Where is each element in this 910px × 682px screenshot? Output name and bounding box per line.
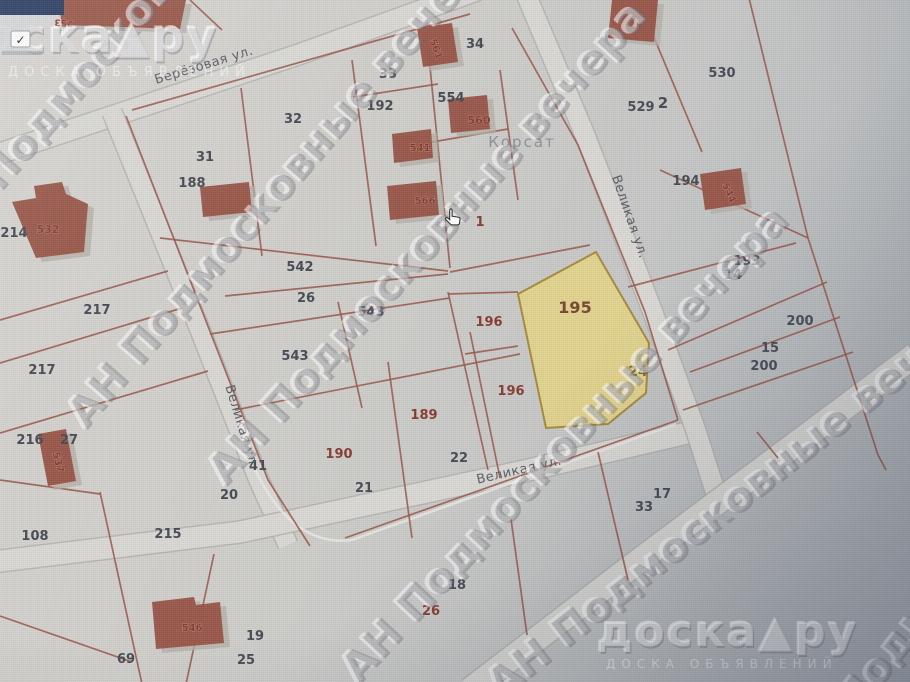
parcel-number-label: 33 bbox=[635, 500, 653, 515]
parcel-boundary-line bbox=[0, 616, 132, 662]
building-number-label: 560 bbox=[468, 114, 491, 127]
parcel-number-label: 69 bbox=[117, 652, 135, 667]
parcel-number-label: 200 bbox=[786, 314, 813, 329]
photo-of-screen: 1952425356153256054156653754654421421721… bbox=[0, 0, 910, 682]
cadastral-map-canvas[interactable]: 1952425356153256054156653754654421421721… bbox=[0, 0, 910, 682]
parcel-number-label: 27 bbox=[60, 433, 78, 448]
address-number-label: 189 bbox=[410, 408, 437, 423]
parcel-number-label: 34 bbox=[466, 37, 484, 52]
parcel-number-label: 31 bbox=[196, 150, 214, 165]
parcel-number-label: 17 bbox=[653, 487, 671, 502]
parcel-number-label: 542 bbox=[286, 260, 313, 275]
site-tagline: ДОСКА ОБЪЯВЛЕНИЙ bbox=[8, 64, 251, 80]
building: 532 bbox=[12, 182, 94, 262]
building-number-label: 546 bbox=[182, 623, 203, 634]
parcel-number-label: 200 bbox=[750, 359, 777, 374]
parcel-number-label: 26 bbox=[297, 291, 315, 306]
address-number-label: 196 bbox=[475, 315, 502, 330]
svg-text:доска▲ру: доска▲ру bbox=[597, 606, 858, 657]
parcel-number-label: 529 bbox=[627, 100, 654, 115]
building-number-label: 532 bbox=[37, 223, 60, 236]
parcel-number-label: 216 bbox=[16, 433, 43, 448]
parcel-number-label: 530 bbox=[708, 66, 735, 81]
site-tagline: ДОСКА ОБЪЯВЛЕНИЙ bbox=[606, 656, 838, 671]
parcel-number-label: 217 bbox=[28, 363, 55, 378]
parcel-number-label: 214 bbox=[0, 226, 27, 241]
checkmark-icon: ✓ bbox=[15, 33, 25, 47]
building-number-label: 541 bbox=[410, 143, 431, 154]
parcel-number-label: 15 bbox=[761, 341, 779, 356]
parcel-number-label: 2 bbox=[658, 94, 668, 112]
parcel-number-label: 194 bbox=[672, 174, 699, 189]
small-text-bar bbox=[2, 51, 42, 55]
parcel-number-label: 21 bbox=[355, 481, 373, 496]
building: 546 bbox=[152, 597, 230, 653]
parcel-number-label: 25 bbox=[237, 653, 255, 668]
parcel-number-label: 217 bbox=[83, 303, 110, 318]
parcel-boundary-line bbox=[511, 519, 527, 635]
address-number-label: 190 bbox=[325, 447, 352, 462]
address-number-label: 196 bbox=[497, 384, 524, 399]
parcel-number-label: 554 bbox=[437, 91, 464, 106]
selected-parcel-number: 195 bbox=[558, 298, 591, 317]
parcel-number-label: 188 bbox=[178, 176, 205, 191]
parcel-number-label: 19 bbox=[246, 629, 264, 644]
parcel-number-label: 215 bbox=[154, 527, 181, 542]
building: 541 bbox=[392, 129, 439, 167]
building: 544 bbox=[700, 168, 752, 214]
parcel-boundary-line bbox=[650, 28, 702, 152]
window-title-bar-fragment[interactable] bbox=[0, 0, 64, 15]
parcel-number-label: 108 bbox=[21, 529, 48, 544]
parcel-boundary-line bbox=[448, 292, 518, 294]
site-logo-bottom: доска▲рудоска▲рудоска▲руДОСКА ОБЪЯВЛЕНИЙ bbox=[596, 605, 860, 671]
parcel-number-label: 22 bbox=[450, 451, 468, 466]
